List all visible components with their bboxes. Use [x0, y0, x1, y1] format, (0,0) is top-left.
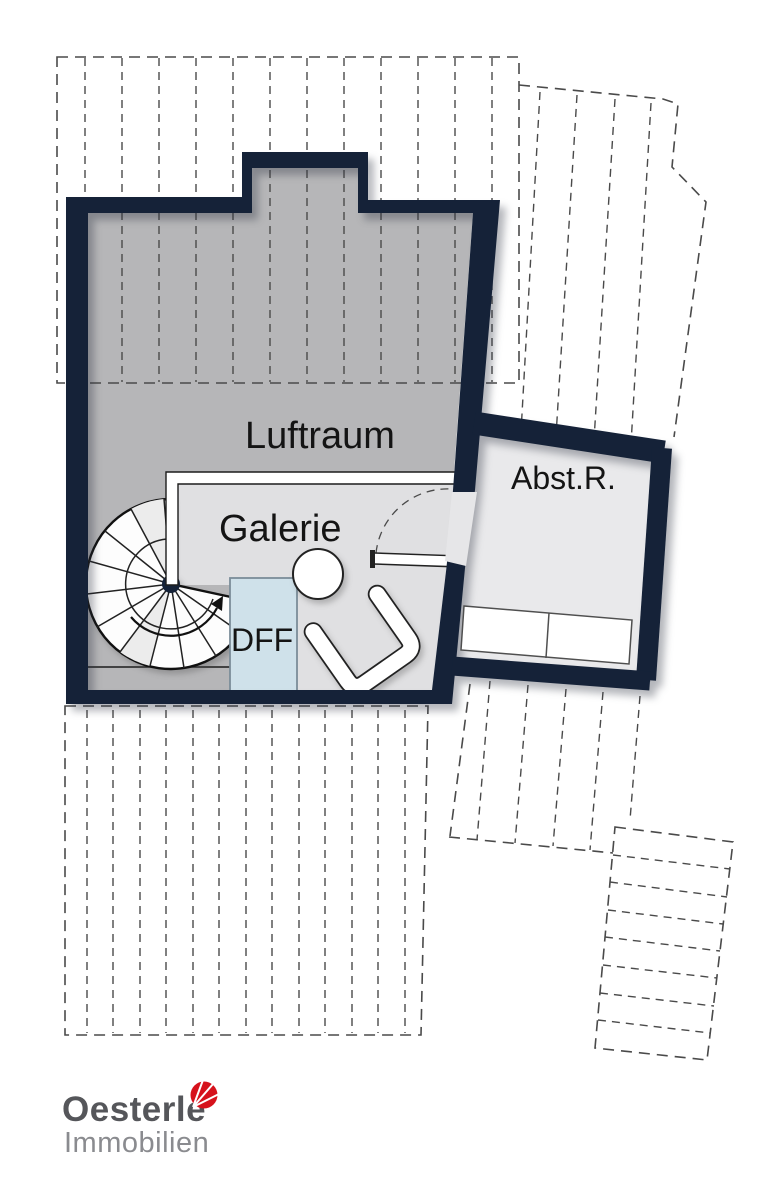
floor-plan-page: Luftraum Galerie Abst.R. DFF Oesterle Im…	[0, 0, 761, 1200]
roof-projection-bottom-right	[449, 681, 640, 853]
door-hinge-mark	[370, 550, 375, 568]
label-galerie: Galerie	[219, 508, 342, 550]
logo-subtitle: Immobilien	[64, 1127, 209, 1159]
roof-projection-bottom	[65, 706, 428, 1035]
floor-plan-drawing: Luftraum Galerie Abst.R. DFF Oesterle Im…	[0, 0, 761, 1200]
logo-name: Oesterle	[62, 1090, 206, 1129]
label-abstellraum: Abst.R.	[511, 460, 616, 496]
logo: Oesterle Immobilien	[62, 1080, 219, 1159]
roof-projection-top-right	[519, 85, 706, 444]
label-luftraum: Luftraum	[245, 415, 395, 457]
round-table	[293, 549, 343, 599]
stairwell-below-dashed	[595, 827, 733, 1060]
door-leaf	[374, 553, 448, 567]
logo-fan-icon	[191, 1080, 220, 1109]
label-dff: DFF	[231, 622, 293, 658]
